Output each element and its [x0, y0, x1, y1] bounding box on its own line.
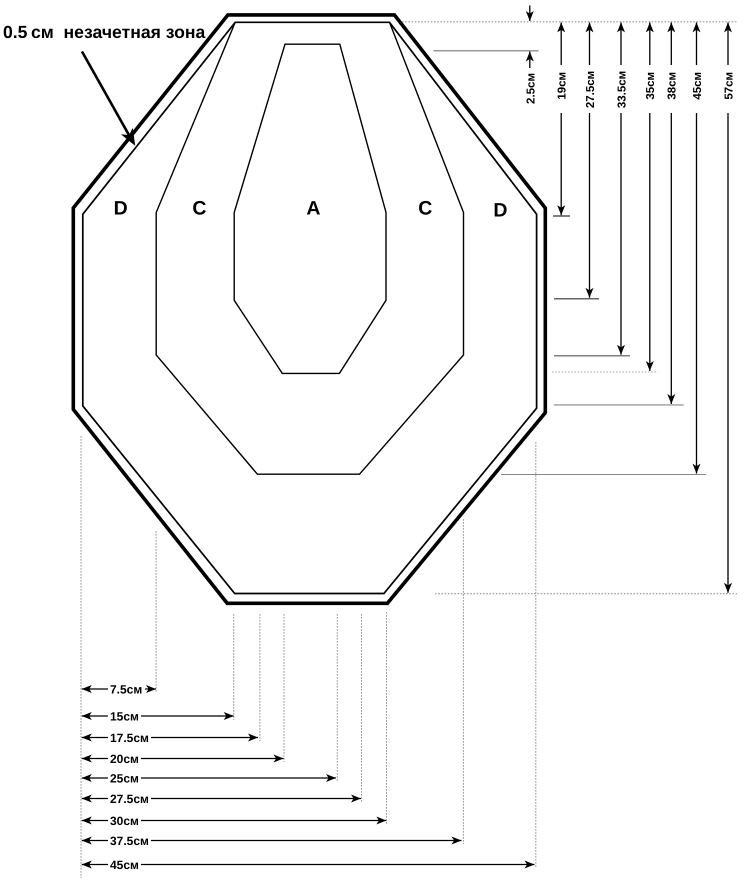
svg-text:35см: 35см	[645, 72, 657, 100]
svg-text:7.5см: 7.5см	[110, 682, 142, 696]
svg-text:30см: 30см	[110, 814, 139, 828]
svg-text:20см: 20см	[110, 752, 139, 766]
svg-text:17.5см: 17.5см	[110, 731, 149, 745]
svg-text:33.5см: 33.5см	[616, 71, 628, 108]
svg-text:D: D	[493, 200, 507, 222]
svg-text:A: A	[306, 198, 320, 220]
svg-text:45см: 45см	[110, 858, 139, 872]
svg-text:38см: 38см	[667, 72, 679, 100]
svg-text:C: C	[192, 198, 206, 220]
svg-text:D: D	[114, 198, 128, 220]
svg-text:27.5см: 27.5см	[110, 792, 149, 806]
svg-text:2.5см: 2.5см	[525, 73, 537, 104]
svg-text:15см: 15см	[110, 709, 139, 723]
svg-text:27.5см: 27.5см	[585, 71, 597, 108]
svg-text:57см: 57см	[723, 72, 735, 100]
svg-text:0.5 см незачетная зона: 0.5 см незачетная зона	[3, 22, 205, 42]
svg-text:19см: 19см	[557, 72, 569, 100]
svg-text:45см: 45см	[692, 72, 704, 100]
svg-text:37.5см: 37.5см	[110, 834, 149, 848]
svg-text:C: C	[418, 198, 432, 220]
svg-text:25см: 25см	[110, 771, 139, 785]
